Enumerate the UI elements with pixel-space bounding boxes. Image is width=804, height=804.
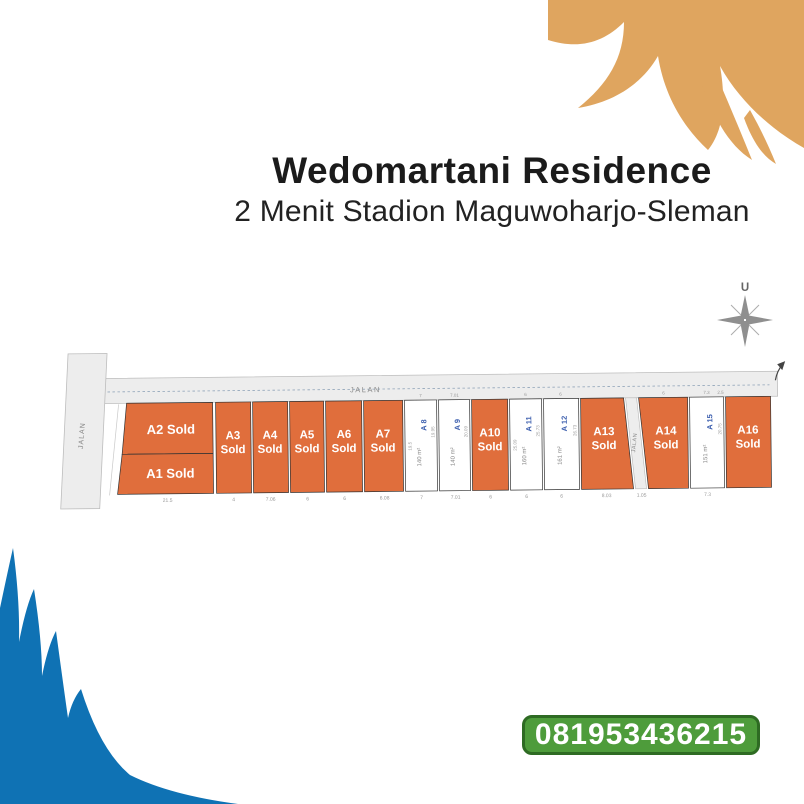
bottom-dimension-label: 8.03	[602, 493, 612, 499]
plot-a8-left-dim: 19.5	[408, 441, 413, 450]
site-plan: JALAN JALAN A2 SoldA1 SoldA3SoldA4SoldA5…	[0, 0, 804, 804]
plot-a12-area: 161 m²	[558, 446, 564, 465]
compass-north-label: U	[741, 282, 749, 294]
bottom-dimension-label: 7.3	[704, 492, 711, 498]
plot-a15-name: A 15	[705, 414, 714, 430]
bottom-dimension-label: 21.5	[163, 498, 173, 504]
plot-a9-right-dim: 20.09	[463, 425, 468, 437]
plot-a9-name: A 9	[453, 419, 462, 431]
bottom-dimension-label: 6	[560, 494, 563, 500]
bottom-dimension-label: 4	[232, 497, 235, 503]
plot-a2-label: A2 Sold	[147, 422, 196, 438]
plot-a9	[439, 400, 471, 491]
plot-a11-right-dim: 25.73	[535, 425, 540, 437]
plot-a11-area: 160 m²	[522, 447, 528, 466]
plot-a11-left-dim: 25.09	[512, 439, 517, 451]
page-subtitle: 2 Menit Stadion Maguwoharjo-Sleman	[190, 195, 794, 229]
plot-a8-area: 140 m²	[417, 448, 423, 467]
plots-layer: A2 SoldA1 SoldA3SoldA4SoldA5SoldA6SoldA7…	[117, 396, 772, 494]
plot-a15-right-dim: 20.75	[717, 423, 722, 435]
top-road-label: JALAN	[350, 385, 381, 394]
bottom-dimension-label: 6	[525, 494, 528, 500]
bottom-dimension-label: 6	[306, 496, 309, 502]
bottom-dimension-label: 7.01	[451, 495, 461, 501]
phone-number: 081953436215	[535, 718, 747, 752]
bottom-dimension-label: 1.05	[637, 493, 647, 499]
plot-a12-name: A 12	[560, 416, 569, 432]
plot-a12	[544, 398, 580, 489]
bottom-dimension-label: 7.06	[266, 497, 276, 503]
plot-a15-area: 151 m²	[703, 445, 709, 464]
boundary-sliver-line	[109, 404, 120, 495]
plot-a11-name: A 11	[524, 416, 533, 431]
compass-rose-icon: U	[717, 282, 773, 347]
plot-a8-right-dim: 19.95	[430, 426, 435, 438]
plot-a9-area: 140 m²	[451, 447, 457, 466]
top-dimension-label: 7.01	[450, 393, 459, 398]
top-dimension-label: 2.5	[717, 390, 724, 395]
phone-number-badge: 081953436215	[522, 715, 760, 755]
plot-a15	[690, 397, 725, 488]
plot-a1-label: A1 Sold	[146, 466, 195, 482]
bottom-dimension-label: 6	[489, 494, 492, 500]
bottom-dimension-label: 6	[343, 496, 346, 502]
bottom-dimension-label: 6.08	[380, 495, 390, 501]
poster-canvas: Wedomartani Residence 2 Menit Stadion Ma…	[0, 0, 804, 804]
bottom-dimension-label: 7	[420, 495, 423, 501]
top-dimension-label: 7.3	[703, 390, 710, 395]
plot-a12-right-dim: 26.73	[572, 424, 577, 436]
page-title: Wedomartani Residence	[190, 150, 794, 192]
header: Wedomartani Residence 2 Menit Stadion Ma…	[190, 150, 794, 229]
site-plan-group: JALAN JALAN A2 SoldA1 SoldA3SoldA4SoldA5…	[59, 346, 787, 509]
plot-a8-name: A 8	[419, 419, 428, 431]
